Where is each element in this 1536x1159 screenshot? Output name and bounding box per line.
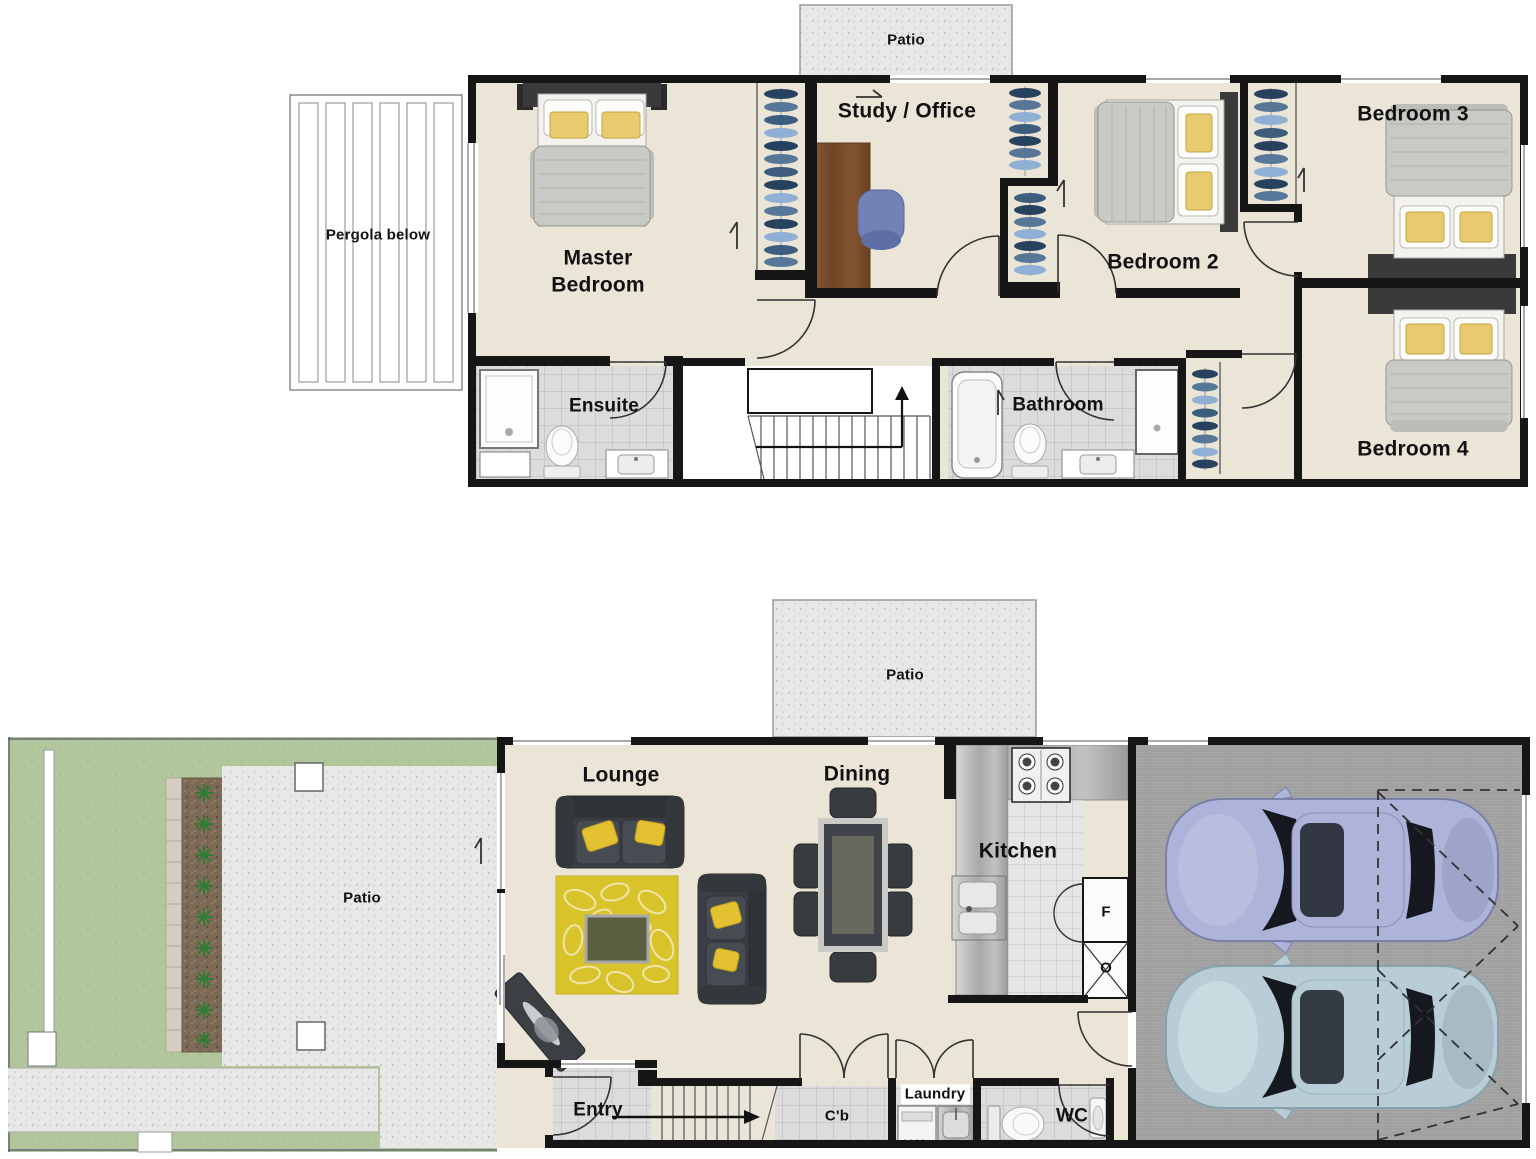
cooktop (1012, 748, 1070, 802)
car-1 (1166, 787, 1498, 953)
fence-rail (44, 750, 54, 1034)
upper-stairs (683, 366, 932, 479)
upper-floor-plan (290, 5, 1528, 487)
master-bed (517, 83, 667, 226)
coffee-table (586, 916, 648, 962)
label-laundry: Laundry (901, 1084, 970, 1104)
yard-patio-slab (222, 766, 497, 1066)
lounge-sofa-top (556, 796, 684, 868)
label-ground-patio: Patio (886, 665, 924, 685)
label-yard-patio: Patio (343, 888, 381, 908)
label-cupboard: C'b (825, 1106, 849, 1126)
label-entry: Entry (573, 1099, 623, 1124)
floorplan-canvas: Patio Pergola below Master Bedroom Study… (0, 0, 1536, 1159)
bathroom-toilet (1014, 424, 1046, 464)
paver-edge (166, 778, 182, 1052)
bedroom2-bed (1094, 92, 1238, 232)
garden-path (8, 1068, 378, 1132)
ground-floor-plan (8, 600, 1530, 1152)
pergola-post (295, 763, 323, 791)
car-2 (1166, 954, 1498, 1120)
lounge-sofa-side (698, 874, 766, 1004)
kitchen-sink (952, 876, 1006, 940)
lounge-rug (556, 876, 678, 996)
yard (8, 737, 545, 1152)
label-bedroom3: Bedroom 3 (1357, 100, 1469, 127)
ensuite-toilet (546, 426, 578, 466)
label-dining: Dining (824, 760, 891, 787)
fence-post (28, 1032, 56, 1066)
label-lounge: Lounge (582, 761, 659, 788)
label-study: Study / Office (838, 97, 976, 124)
label-wc: WC (1056, 1105, 1088, 1130)
label-bedroom2: Bedroom 2 (1107, 248, 1219, 275)
label-bathroom: Bathroom (1012, 394, 1103, 419)
label-oven-marker: O (1100, 958, 1112, 978)
label-pergola: Pergola below (326, 225, 430, 245)
garage (1136, 745, 1522, 1140)
label-fridge-marker: F (1101, 902, 1110, 922)
bathroom-shower (1136, 370, 1178, 454)
label-bedroom4: Bedroom 4 (1357, 435, 1469, 462)
gate (138, 1132, 172, 1152)
label-kitchen: Kitchen (979, 837, 1057, 864)
wc-cistern (988, 1106, 1000, 1142)
wc-toilet (1002, 1107, 1044, 1141)
floorplan-graphic (0, 0, 1536, 1159)
pergola-post (297, 1022, 325, 1050)
ensuite-shower (480, 370, 538, 448)
label-master-bedroom: Master Bedroom (533, 245, 663, 300)
label-upper-patio: Patio (887, 30, 925, 50)
label-ensuite: Ensuite (569, 395, 639, 420)
